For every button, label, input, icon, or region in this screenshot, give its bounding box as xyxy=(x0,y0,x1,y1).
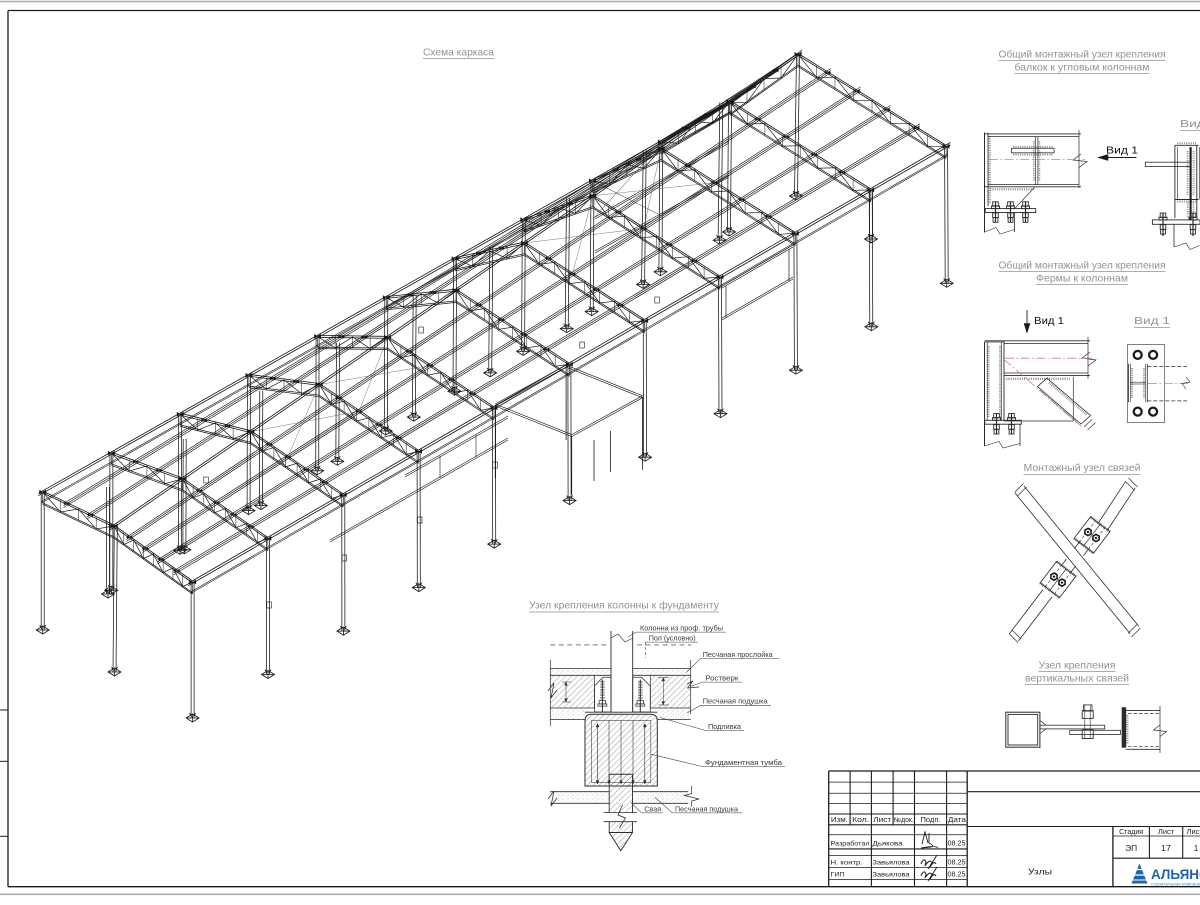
svg-text:Свая: Свая xyxy=(644,804,661,813)
svg-text:Песчаная подушка: Песчаная подушка xyxy=(703,697,769,706)
svg-text:Общий монтажный узел крепления: Общий монтажный узел крепления xyxy=(999,49,1166,61)
svg-text:Вид 1: Вид 1 xyxy=(1134,315,1170,327)
svg-text:Лист: Лист xyxy=(873,817,892,824)
svg-text:строительная компания: строительная компания xyxy=(1151,882,1200,887)
svg-text:Узел крепления: Узел крепления xyxy=(1039,660,1116,672)
svg-text:Общий монтажный узел крепления: Общий монтажный узел крепления xyxy=(999,260,1166,272)
svg-text:вертикальных связей: вертикальных связей xyxy=(1025,673,1129,685)
svg-text:Н. контр.: Н. контр. xyxy=(831,860,863,867)
svg-text:17: 17 xyxy=(1161,844,1171,853)
svg-text:Лист: Лист xyxy=(1158,829,1175,836)
svg-text:Завьялова: Завьялова xyxy=(873,860,910,867)
svg-text:08.25: 08.25 xyxy=(948,841,966,848)
svg-text:Стадия: Стадия xyxy=(1119,829,1143,836)
svg-text:Фундаментная тумба: Фундаментная тумба xyxy=(705,758,783,767)
svg-text:Подп.: Подп. xyxy=(921,817,941,824)
svg-text:Песчаная подушка: Песчаная подушка xyxy=(675,804,739,813)
svg-text:08.25: 08.25 xyxy=(948,872,966,879)
svg-text:Вид 1: Вид 1 xyxy=(1180,118,1200,130)
svg-text:ГИП: ГИП xyxy=(831,872,845,879)
svg-text:Кол.: Кол. xyxy=(852,817,869,824)
svg-text:Пол (условно): Пол (условно) xyxy=(649,634,696,643)
svg-text:ЭП: ЭП xyxy=(1125,844,1137,853)
svg-text:Колонна из проф. трубы: Колонна из проф. трубы xyxy=(640,624,723,633)
svg-text:Песчаная прослойка: Песчаная прослойка xyxy=(703,650,774,659)
svg-text:Разработал: Разработал xyxy=(831,840,870,848)
svg-text:№док.: №док. xyxy=(894,817,914,824)
svg-text:Изм.: Изм. xyxy=(831,817,848,824)
svg-text:Дьякова: Дьякова xyxy=(873,841,903,848)
svg-text:Завьялова: Завьялова xyxy=(873,872,910,879)
svg-text:Узел крепления колонны к фунда: Узел крепления колонны к фундаменту xyxy=(529,600,720,612)
svg-text:АЛЬЯНС: АЛЬЯНС xyxy=(1151,867,1200,882)
svg-text:Вид 1: Вид 1 xyxy=(1106,146,1139,157)
svg-text:Монтажный узел связей: Монтажный узел связей xyxy=(1024,462,1141,474)
svg-text:Дата: Дата xyxy=(948,817,966,824)
svg-text:08.25: 08.25 xyxy=(948,860,966,867)
svg-text:1: 1 xyxy=(1194,844,1199,853)
svg-text:Лис: Лис xyxy=(1187,829,1200,836)
svg-text:балкок к угловым колоннам: балкок к угловым колоннам xyxy=(1015,62,1150,74)
svg-text:Подливка: Подливка xyxy=(708,722,742,731)
svg-text:Вид 1: Вид 1 xyxy=(1034,316,1064,327)
svg-text:Узлы: Узлы xyxy=(1028,867,1052,877)
svg-text:Схема каркаса: Схема каркаса xyxy=(423,47,494,59)
svg-text:Ростверк: Ростверк xyxy=(705,674,739,683)
svg-text:Фермы к колоннам: Фермы к колоннам xyxy=(1036,274,1128,285)
